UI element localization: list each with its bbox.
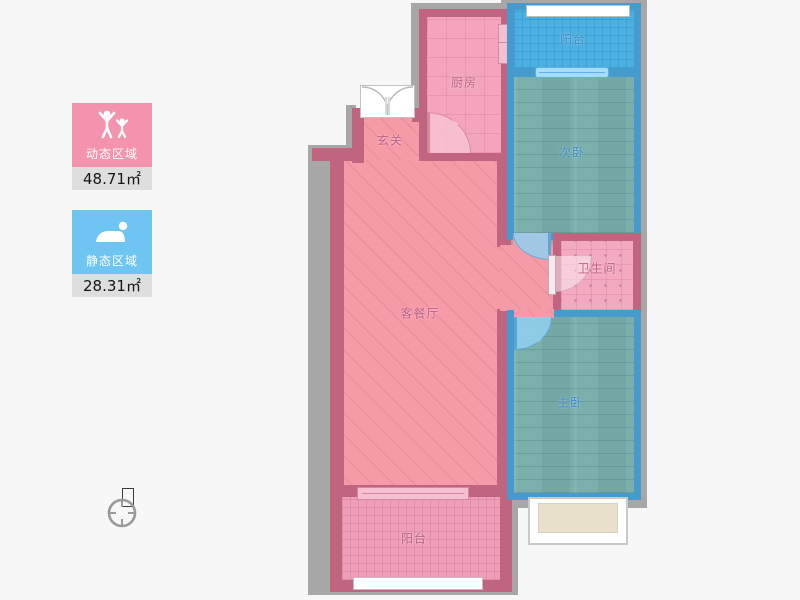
static-zone-label: 静态区域: [86, 252, 138, 274]
bathroom-door-leaf: [548, 255, 556, 295]
unit-sqm: ㎡: [126, 168, 141, 189]
compass-icon: [107, 498, 137, 528]
label-living-dining: 客餐厅: [400, 305, 439, 322]
balcony-bottom-window: [353, 577, 483, 590]
person-sleeping-icon: [90, 218, 134, 250]
label-bathroom: 卫生间: [577, 260, 616, 277]
static-zone-value: 28.31㎡: [72, 274, 152, 297]
bedroom-second-balcony-sliding-door: [535, 67, 609, 78]
bay-window-sill: [538, 503, 618, 533]
static-zone-swatch: 静态区域: [72, 210, 152, 274]
label-entry: 玄关: [377, 132, 403, 149]
entrance-double-door-icon: [360, 85, 415, 118]
label-balcony-bottom: 阳台: [401, 530, 427, 547]
dynamic-zone-swatch: 动态区域: [72, 103, 152, 167]
legend-card-static: 静态区域 28.31㎡: [72, 210, 152, 297]
wall-living-left: [330, 158, 344, 498]
unit-sqm: ㎡: [126, 275, 141, 296]
dynamic-zone-label: 动态区域: [86, 145, 138, 167]
people-arms-up-icon: [92, 109, 132, 143]
dynamic-zone-value: 48.71㎡: [72, 167, 152, 190]
label-bedroom-master: 主卧: [557, 394, 583, 411]
living-balcony-sliding-door: [357, 487, 469, 500]
label-bedroom-second: 次卧: [559, 144, 585, 161]
label-balcony-top: 阳台: [560, 31, 586, 48]
legend-card-dynamic: 动态区域 48.71㎡: [72, 103, 152, 190]
label-kitchen: 厨房: [451, 74, 477, 91]
room-living-dining-floor[interactable]: [342, 160, 507, 497]
balcony-top-window: [526, 5, 630, 17]
